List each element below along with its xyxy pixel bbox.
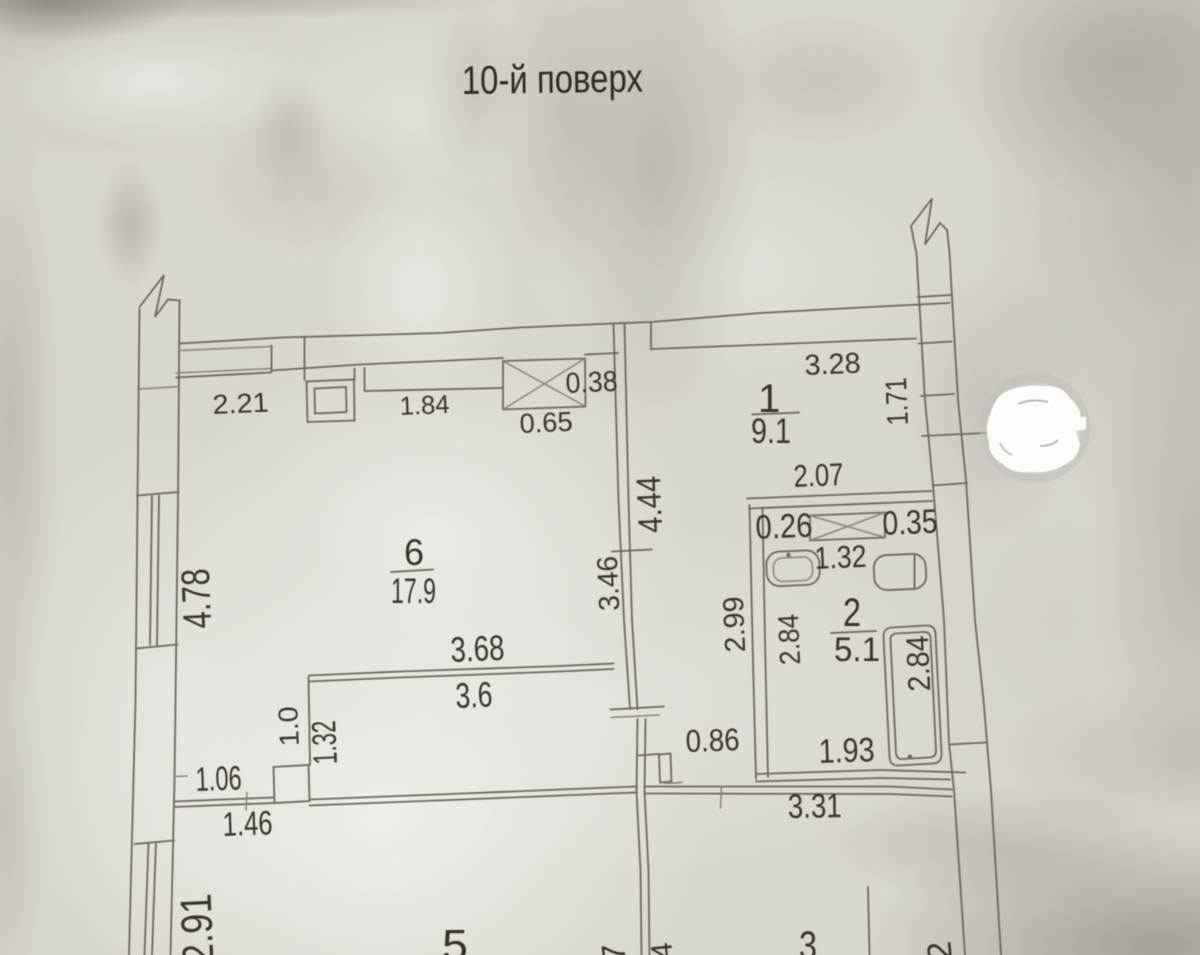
svg-text:1.46: 1.46 <box>222 804 273 844</box>
svg-text:17.9: 17.9 <box>391 571 436 611</box>
svg-text:1.71: 1.71 <box>880 377 915 426</box>
svg-text:2.21: 2.21 <box>212 387 269 420</box>
svg-text:1.06: 1.06 <box>195 759 242 799</box>
svg-text:4.78: 4.78 <box>174 568 221 630</box>
svg-text:2.84: 2.84 <box>899 635 937 693</box>
svg-text:0.26: 0.26 <box>755 507 814 547</box>
svg-text:3.28: 3.28 <box>804 348 861 382</box>
svg-text:3.31: 3.31 <box>787 787 842 826</box>
svg-text:1.0: 1.0 <box>272 706 305 747</box>
svg-text:4.44: 4.44 <box>630 475 670 534</box>
svg-text:5.1: 5.1 <box>834 631 880 669</box>
svg-text:2.84: 2.84 <box>773 613 807 665</box>
svg-text:0.65: 0.65 <box>519 406 573 439</box>
svg-text:2: 2 <box>843 591 861 635</box>
svg-text:3.68: 3.68 <box>450 628 506 670</box>
svg-text:1.32: 1.32 <box>305 720 345 766</box>
svg-text:9.1: 9.1 <box>751 411 791 451</box>
svg-text:2.91: 2.91 <box>172 893 224 955</box>
svg-text:0.35: 0.35 <box>882 503 939 543</box>
svg-text:5: 5 <box>442 921 468 955</box>
svg-text:0.38: 0.38 <box>565 366 618 400</box>
svg-text:7: 7 <box>594 942 632 955</box>
svg-text:2.07: 2.07 <box>793 456 845 494</box>
svg-text:1.84: 1.84 <box>399 389 450 421</box>
svg-text:2.99: 2.99 <box>718 596 752 653</box>
svg-text:1.32: 1.32 <box>814 538 868 576</box>
svg-text:10-й поверх: 10-й поверх <box>462 56 644 103</box>
svg-text:1.93: 1.93 <box>818 731 875 771</box>
svg-text:0.86: 0.86 <box>685 721 740 759</box>
svg-text:4: 4 <box>645 941 679 955</box>
svg-text:3: 3 <box>799 924 817 955</box>
svg-text:3.46: 3.46 <box>592 555 626 611</box>
svg-text:2: 2 <box>920 940 960 955</box>
svg-text:3.6: 3.6 <box>455 674 494 716</box>
svg-text:6: 6 <box>404 532 424 573</box>
